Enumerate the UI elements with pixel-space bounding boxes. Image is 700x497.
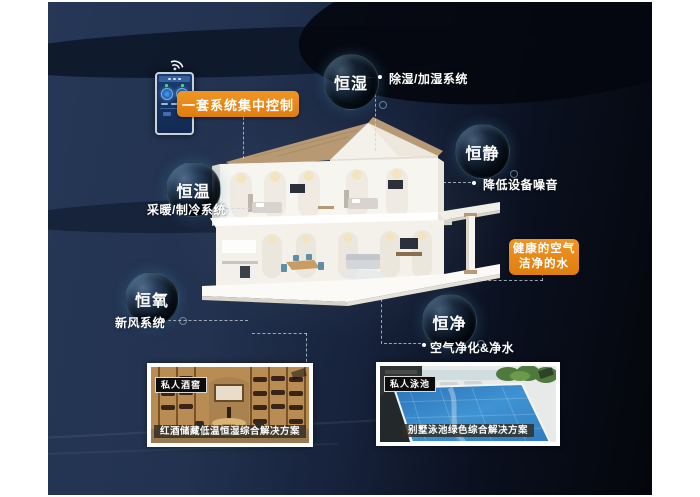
healthy-air-water-box: 健康的空气 洁净的水 (509, 239, 579, 275)
label-heating-cooling-system: 采暖/制冷系统 (147, 201, 226, 218)
connector-line (243, 117, 244, 159)
healthy-air-line: 健康的空气 (513, 242, 576, 257)
label-dehumidify-system: 除湿/加湿系统 (389, 70, 468, 87)
card-pool: 私人泳池 别墅泳池绿色综合解决方案 (376, 362, 560, 446)
bubble-constant-quiet: 恒静 (455, 124, 510, 179)
label-fresh-air-system: 新风系统 (115, 314, 165, 331)
connector-line (252, 333, 307, 334)
connector-line (478, 280, 543, 281)
connector-dot (422, 343, 426, 347)
card-wine-cellar: 私人酒窖 红酒储藏低温恒湿综合解决方案 (147, 363, 313, 447)
card-caption: 红酒储藏低温恒湿综合解决方案 (154, 425, 306, 438)
connector-dot (472, 181, 476, 185)
panel-header (159, 76, 190, 82)
dial-icon (161, 88, 173, 100)
bubble-constant-humidity: 恒湿 (323, 54, 379, 110)
clean-water-line: 洁净的水 (519, 257, 569, 272)
label-air-water-purification: 空气净化&净水 (430, 339, 514, 356)
connector-dot (378, 75, 382, 79)
connector-line (443, 182, 471, 183)
central-control-label: 一套系统集中控制 (177, 91, 299, 117)
card-tag: 私人酒窖 (155, 377, 207, 393)
infographic-page: 一套系统集中控制 (0, 0, 700, 497)
card-caption: 别墅泳池绿色综合解决方案 (402, 424, 534, 437)
panel-status-leds (159, 84, 190, 87)
connector-line (384, 343, 421, 344)
card-tag: 私人泳池 (384, 376, 436, 392)
connector-line (381, 299, 382, 344)
connector-line (306, 333, 307, 367)
connector-line (221, 208, 271, 209)
label-noise-reduction: 降低设备噪音 (483, 176, 558, 193)
